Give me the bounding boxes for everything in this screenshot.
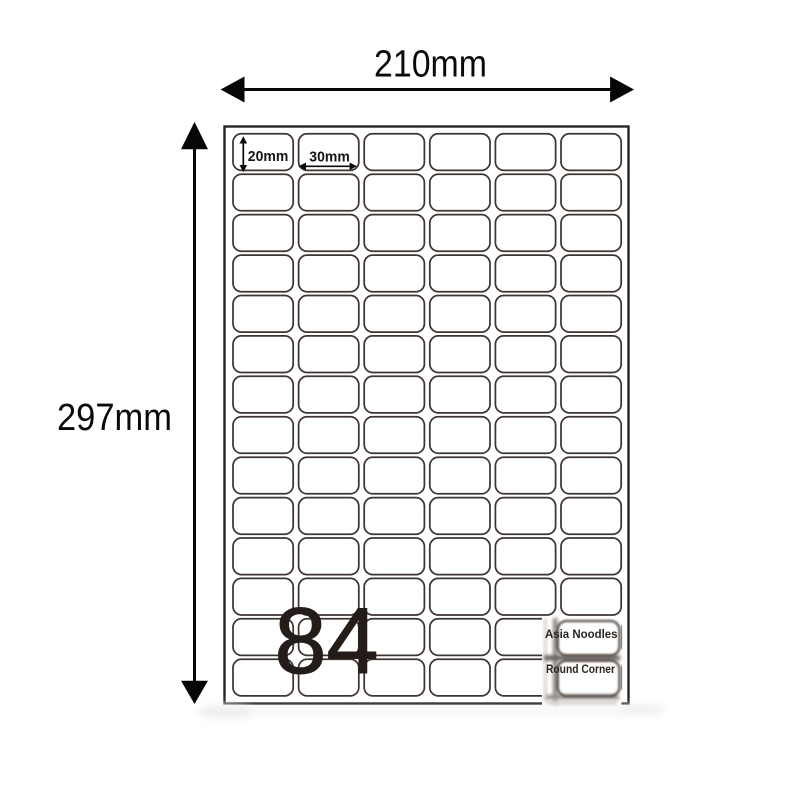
svg-text:84: 84 [275, 588, 379, 693]
svg-text:297mm: 297mm [57, 397, 172, 439]
svg-text:Round Corner: Round Corner [546, 662, 615, 676]
svg-text:20mm: 20mm [248, 149, 289, 165]
svg-text:210mm: 210mm [374, 43, 487, 85]
svg-text:30mm: 30mm [309, 150, 350, 166]
svg-text:Asia Noodles: Asia Noodles [545, 627, 618, 641]
